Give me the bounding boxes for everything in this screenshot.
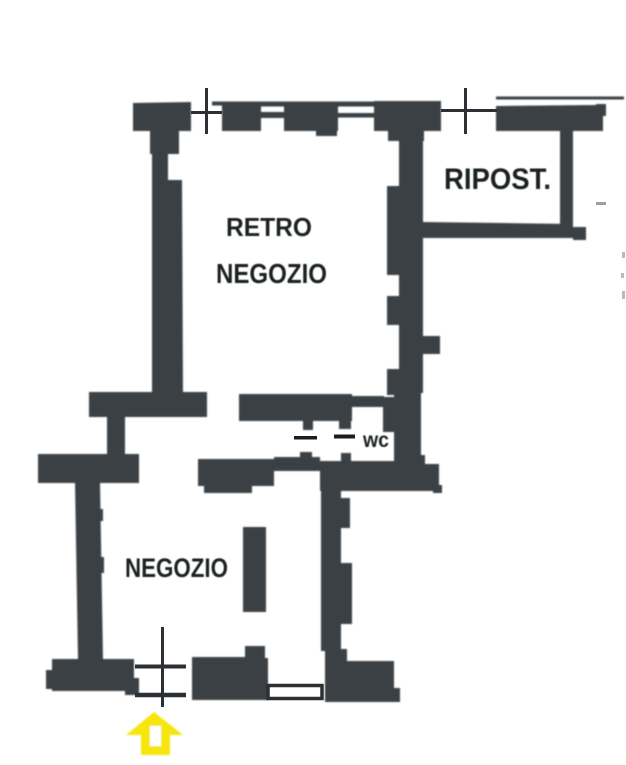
- svg-text:RETRO: RETRO: [226, 212, 312, 242]
- svg-text:NEGOZIO: NEGOZIO: [216, 258, 327, 289]
- svg-text:RIPOST.: RIPOST.: [444, 163, 551, 196]
- svg-text:NEGOZIO: NEGOZIO: [125, 553, 228, 583]
- svg-text:wc: wc: [362, 429, 389, 452]
